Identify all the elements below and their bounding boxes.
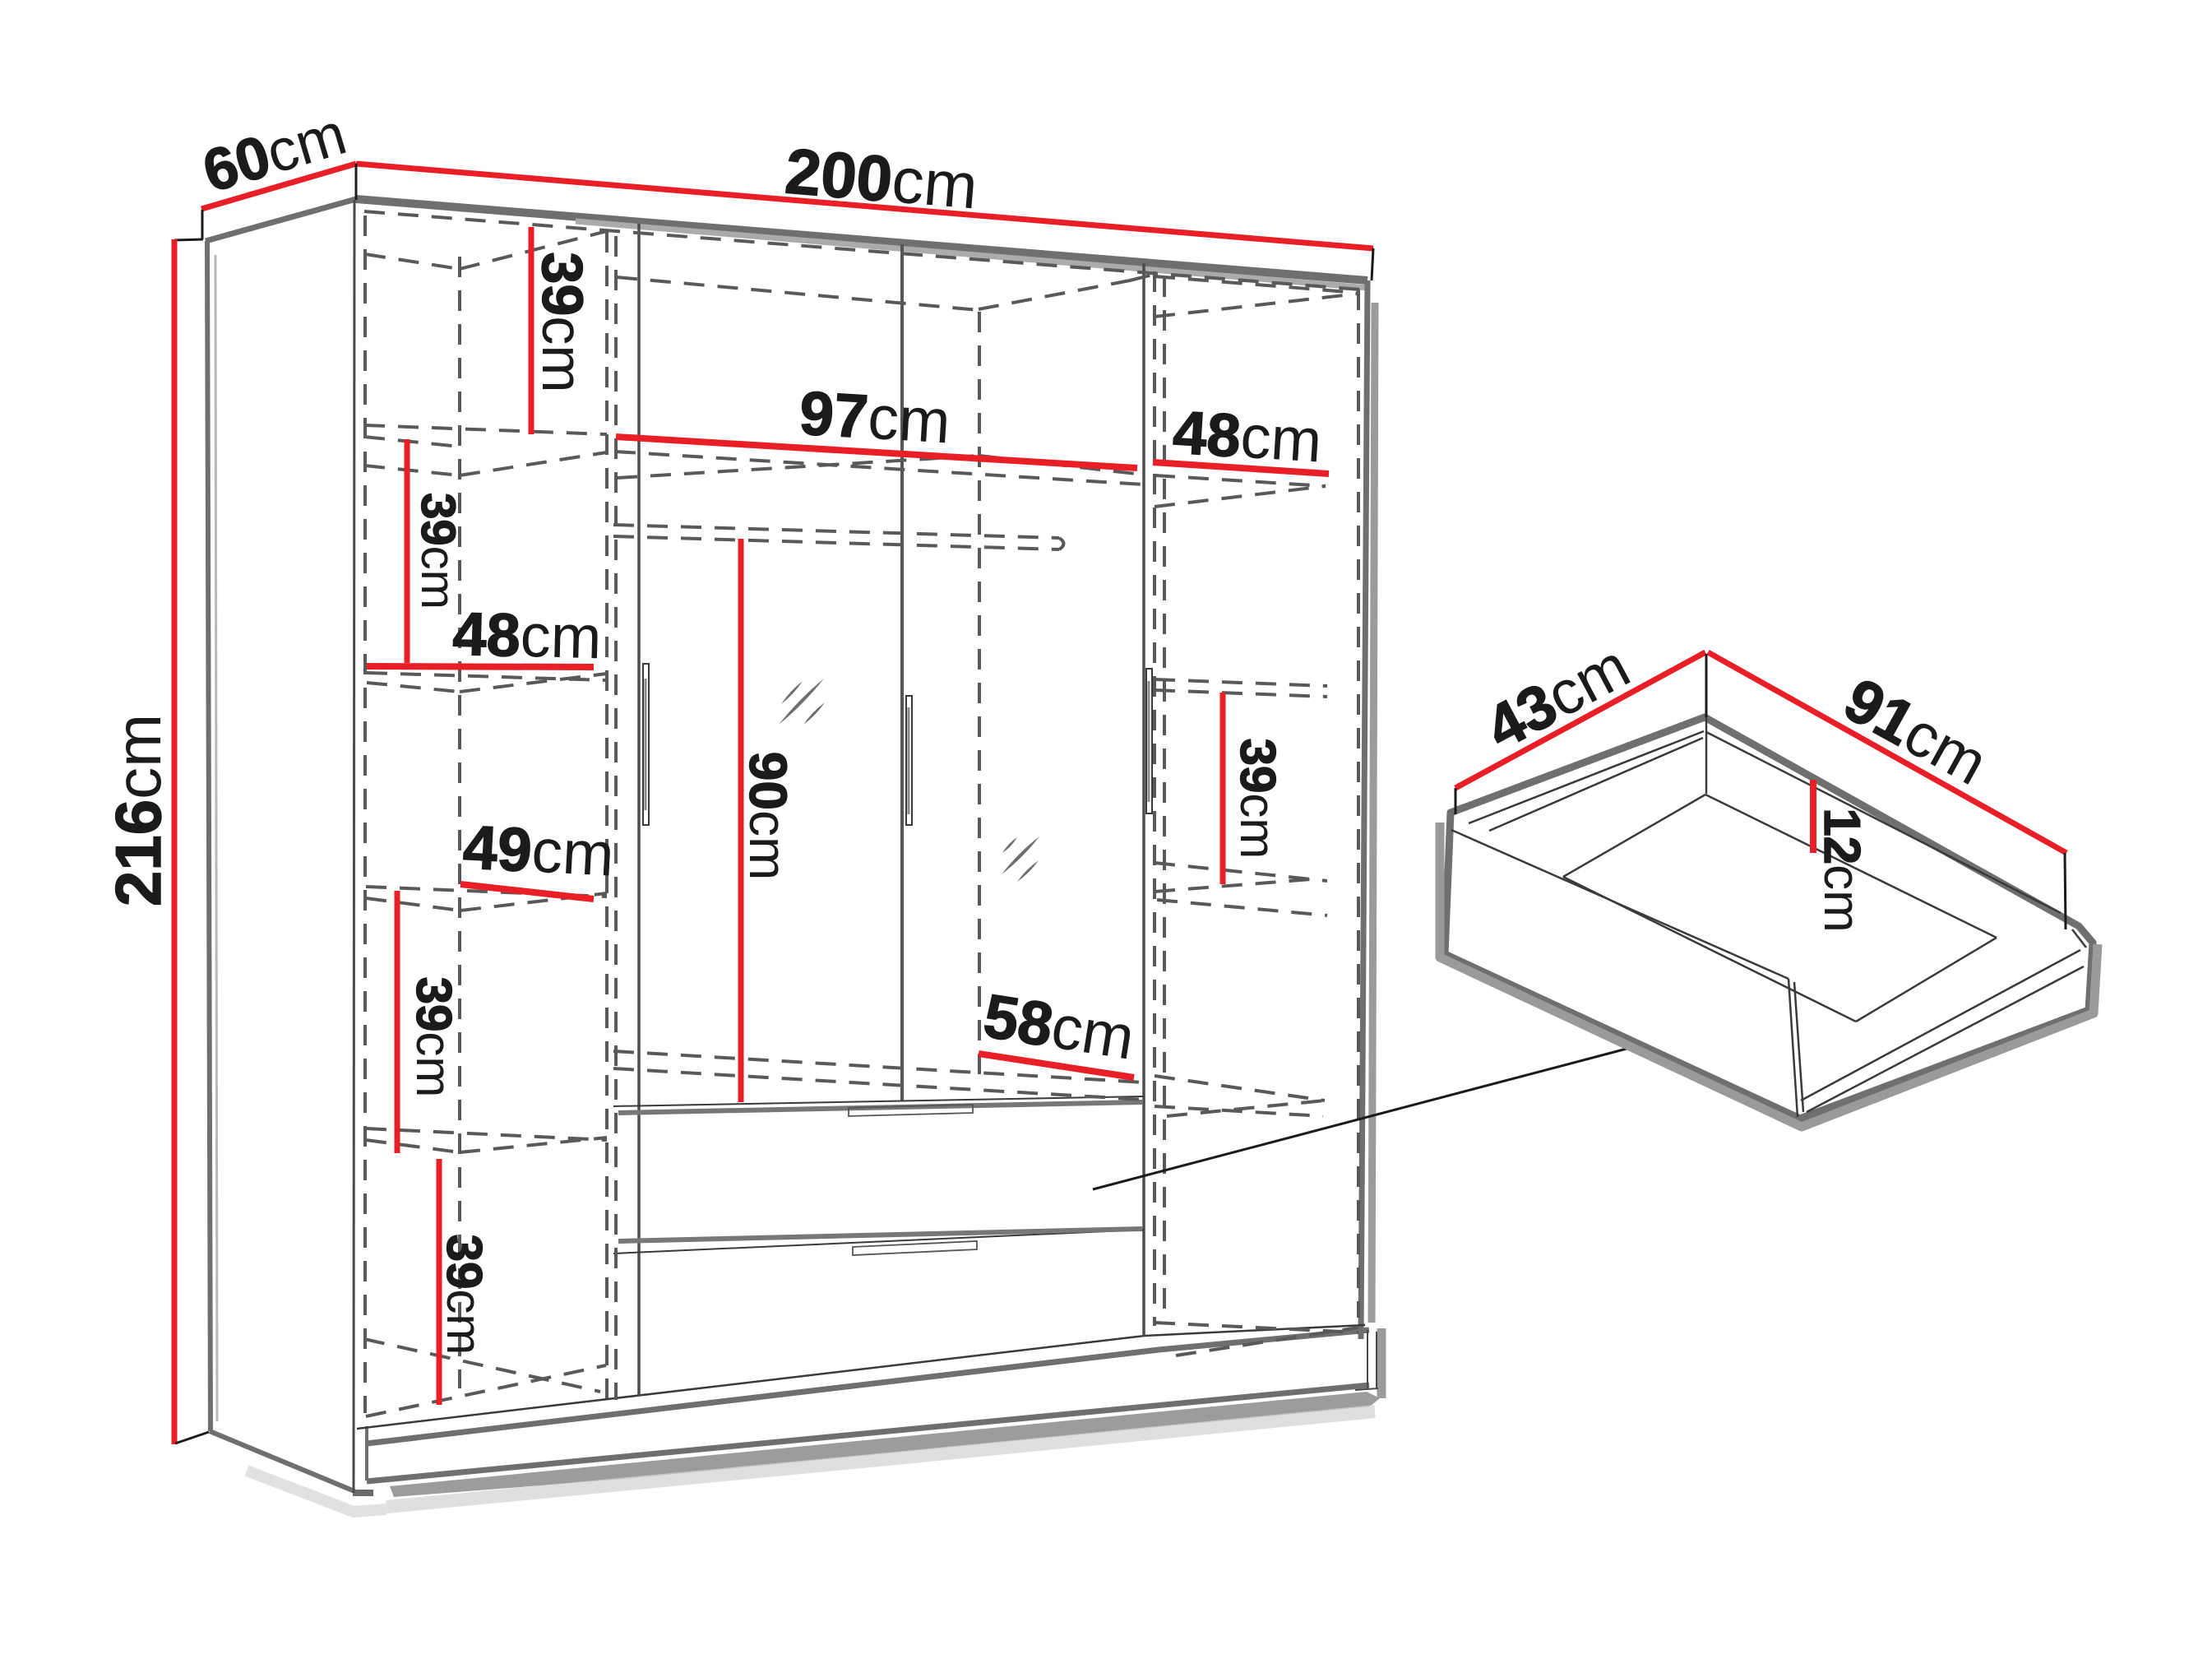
svg-text:216cm: 216cm [102,714,174,906]
svg-text:90cm: 90cm [738,752,798,881]
svg-text:39cm: 39cm [407,977,462,1098]
svg-text:48cm: 48cm [451,599,602,671]
svg-text:39cm: 39cm [530,252,595,392]
svg-text:39cm: 39cm [412,493,465,609]
svg-text:48cm: 48cm [1171,397,1324,475]
svg-text:39cm: 39cm [437,1235,493,1355]
svg-text:39cm: 39cm [1231,739,1286,860]
svg-text:49cm: 49cm [461,812,616,888]
svg-text:12cm: 12cm [1814,808,1871,933]
svg-text:97cm: 97cm [798,378,952,456]
